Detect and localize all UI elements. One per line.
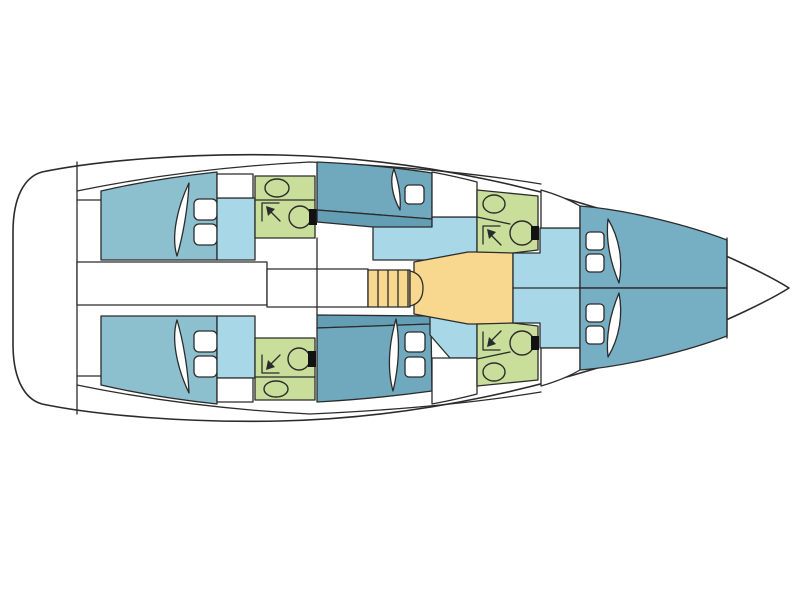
companionway-steps xyxy=(368,270,410,307)
bow-cabin-door-starboard xyxy=(541,348,580,386)
pillow-hatch xyxy=(194,331,217,352)
bathroom-aft-port xyxy=(255,176,317,238)
bathroom-forward-starboard xyxy=(477,323,539,386)
bathroom-forward-port xyxy=(477,190,539,253)
pillow-hatch xyxy=(586,232,604,250)
pillow-hatch xyxy=(194,199,217,220)
toilet-tank xyxy=(531,336,539,350)
corridor-aft xyxy=(77,262,267,305)
deck-hatch-starboard xyxy=(217,378,253,402)
yacht-layout-plan xyxy=(0,0,800,600)
toilet-tank xyxy=(309,209,317,225)
toilet-tank xyxy=(531,226,539,240)
pillow-hatch xyxy=(405,185,424,204)
bow-cabin-port xyxy=(580,206,727,288)
pillow-hatch xyxy=(194,224,217,245)
bathroom-aft-starboard xyxy=(255,338,316,400)
pillow-hatch xyxy=(586,254,604,272)
toilet-tank xyxy=(308,351,316,367)
pillow-hatch xyxy=(586,326,604,344)
aft-passage-port xyxy=(217,198,255,260)
pillow-hatch xyxy=(405,332,425,352)
companionway-floor xyxy=(414,252,513,324)
pillow-hatch xyxy=(586,304,604,322)
mid-cabin-port xyxy=(317,162,432,228)
deck-hatch-port xyxy=(217,174,253,198)
bow-cabin-door-port xyxy=(541,190,580,228)
pillow-hatch xyxy=(194,356,217,377)
mid-cabin-starboard xyxy=(317,315,432,402)
aft-passage-starboard xyxy=(217,316,255,378)
bow-cabin-starboard xyxy=(580,288,727,370)
boat-floorplan-svg xyxy=(0,0,800,600)
pillow-hatch xyxy=(405,357,425,377)
